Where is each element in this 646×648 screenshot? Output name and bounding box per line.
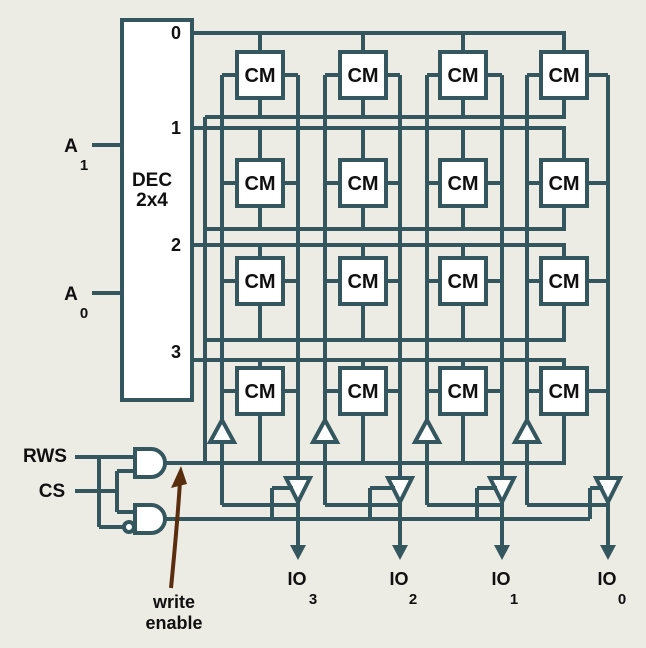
col3-io-arrow-icon (290, 545, 306, 560)
a0-subscript: 0 (80, 305, 88, 322)
word-line-0 (192, 33, 566, 52)
memory-cell-label: CM (447, 381, 478, 403)
memory-cell-r1c0: CM (541, 160, 587, 206)
write-enable-branch-row2 (205, 304, 566, 340)
memory-cell-label: CM (347, 65, 378, 87)
memory-cell-r1c2: CM (340, 160, 386, 206)
io2-label: IO (389, 569, 408, 589)
read-and-gate-icon (135, 505, 165, 533)
write-enable-note-line1: write (152, 592, 195, 612)
decoder-title-top: DEC (132, 170, 172, 191)
col0-io-to-write-link (527, 442, 608, 505)
memory-cell-r2c0: CM (541, 258, 587, 304)
decoder-output-0-label: 0 (171, 23, 181, 43)
memory-cell-label: CM (347, 381, 378, 403)
io2-subscript: 2 (409, 591, 417, 608)
column-0-bitlines (515, 75, 620, 560)
memory-cell-label: CM (244, 381, 275, 403)
write-enable-arrow-icon (171, 466, 187, 488)
write-enable-branch-row0 (205, 98, 566, 117)
write-enable-annotation: write enable (145, 466, 202, 633)
memory-cell-r3c3: CM (237, 368, 283, 414)
memory-cell-label: CM (447, 271, 478, 293)
io1-label: IO (491, 569, 510, 589)
a1-subscript: 1 (80, 157, 88, 174)
memory-cell-r1c3: CM (237, 160, 283, 206)
io3-label: IO (287, 569, 306, 589)
memory-cell-r0c3: CM (237, 52, 283, 98)
col2-io-arrow-icon (392, 545, 408, 560)
cs-branch-wire (117, 471, 135, 512)
memory-cell-r0c1: CM (440, 52, 486, 98)
memory-cell-r3c1: CM (440, 368, 486, 414)
decoder-output-1-label: 1 (171, 118, 181, 138)
col1-io-arrow-icon (494, 545, 510, 560)
write-and-gate-icon (135, 449, 165, 477)
memory-cell-r1c1: CM (440, 160, 486, 206)
col0-read-line (587, 75, 608, 478)
a1-label: A (64, 136, 78, 157)
memory-cell-r3c0: CM (541, 368, 587, 414)
write-enable-arrow-shaft (171, 482, 180, 588)
decoder-output-2-label: 2 (171, 235, 181, 255)
col1-read-line (486, 75, 502, 478)
ram-4x4-diagram-canvas: A 1 A 0 DEC 2x4 0 1 2 3 (0, 0, 646, 648)
ram-circuit-diagram: A 1 A 0 DEC 2x4 0 1 2 3 (0, 0, 646, 648)
write-enable-branch-row1 (205, 206, 566, 229)
memory-cell-r2c1: CM (440, 258, 486, 304)
memory-cell-r0c0: CM (541, 52, 587, 98)
memory-cell-label: CM (347, 173, 378, 195)
inverter-bubble-icon (124, 522, 134, 532)
col3-read-line (283, 75, 298, 478)
memory-cell-label: CM (447, 65, 478, 87)
memory-cell-label: CM (447, 173, 478, 195)
word-line-1 (192, 128, 566, 160)
io-pin-labels: IO 3 IO 2 IO 1 IO 0 (287, 569, 626, 608)
io3-subscript: 3 (309, 591, 317, 608)
write-enable-note-line2: enable (145, 613, 202, 633)
io0-subscript: 0 (618, 591, 626, 608)
memory-cell-label: CM (548, 271, 579, 293)
memory-cell-label: CM (548, 65, 579, 87)
cs-label: CS (39, 481, 65, 502)
col2-read-line (386, 75, 400, 478)
memory-cell-label: CM (548, 173, 579, 195)
rws-label: RWS (23, 446, 67, 467)
address-inputs: A 1 A 0 (64, 136, 122, 322)
memory-cell-label: CM (347, 271, 378, 293)
col1-write-driver-icon (415, 420, 439, 442)
io1-subscript: 1 (510, 591, 518, 608)
decoder-output-3-label: 3 (171, 342, 181, 362)
memory-cell-r3c2: CM (340, 368, 386, 414)
decoder-title-bottom: 2x4 (136, 190, 168, 211)
memory-cell-label: CM (244, 271, 275, 293)
col3-write-driver-icon (210, 420, 234, 442)
decoder-2x4: DEC 2x4 0 1 2 3 (122, 20, 192, 400)
a0-label: A (64, 284, 78, 305)
memory-cell-label: CM (548, 381, 579, 403)
memory-cell-r0c2: CM (340, 52, 386, 98)
memory-cell-label: CM (244, 65, 275, 87)
memory-cell-r2c3: CM (237, 258, 283, 304)
memory-cell-r2c2: CM (340, 258, 386, 304)
col0-write-driver-icon (515, 420, 539, 442)
col2-write-driver-icon (313, 420, 337, 442)
memory-cell-label: CM (244, 173, 275, 195)
col0-io-arrow-icon (600, 545, 616, 560)
io0-label: IO (597, 569, 616, 589)
